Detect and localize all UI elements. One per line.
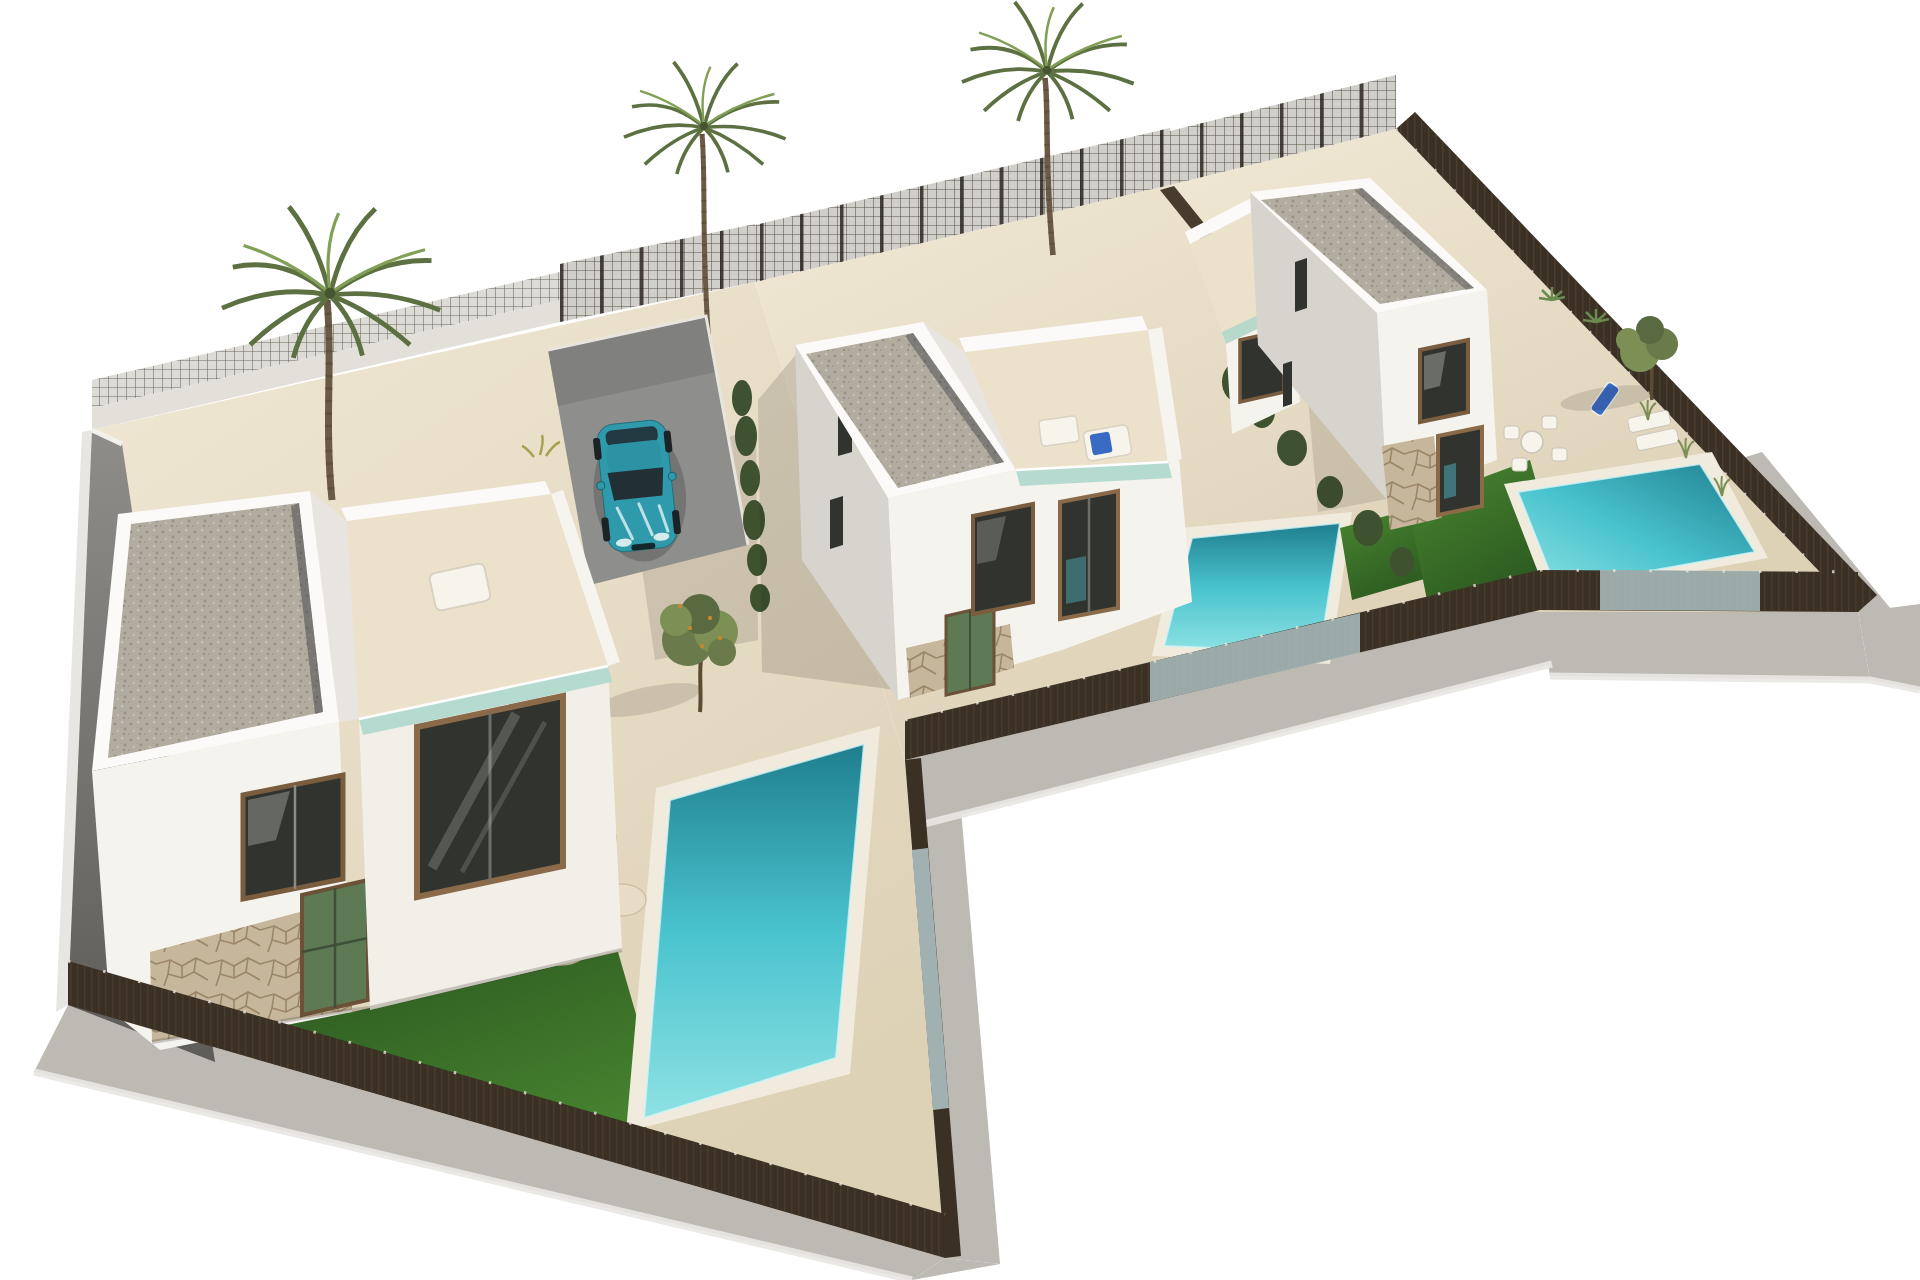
- villa-3-sliding-door: [1438, 427, 1482, 515]
- villa-1-upper-window: [243, 775, 343, 899]
- shrub: [1277, 430, 1307, 466]
- door-pool-reflection: [1066, 556, 1086, 604]
- render-canvas: [0, 0, 1920, 1280]
- car-mirror: [668, 472, 677, 481]
- terrace-lounger: [1038, 415, 1079, 446]
- slot-window: [1283, 361, 1292, 407]
- tree-crown: [708, 638, 736, 666]
- outdoor-chair: [1542, 416, 1557, 429]
- villa-1-sliding-door: [417, 696, 563, 897]
- villa-2-green-door: [946, 605, 994, 695]
- villa-2-sliding-door: [1060, 491, 1118, 619]
- fence-front-right: [1540, 570, 1858, 612]
- villa-2-window: [973, 504, 1033, 614]
- villa-1-main-roof: [92, 491, 339, 771]
- slot-window: [1295, 258, 1307, 312]
- car-mirror: [596, 481, 605, 490]
- villa-1-green-door: [302, 880, 368, 1015]
- lounger-towel: [1089, 431, 1112, 455]
- hedge-bush: [735, 416, 757, 456]
- villa-3-stone-cladding: [1382, 436, 1442, 530]
- outdoor-chair: [1552, 448, 1567, 461]
- villa-3-upper-window: [1420, 340, 1468, 422]
- hedge-bush: [740, 460, 760, 496]
- tree-crown: [1636, 316, 1664, 344]
- pool-glass-fence: [1600, 570, 1760, 611]
- pool-left: [626, 726, 880, 1132]
- tree-crown: [1616, 328, 1640, 352]
- door-pool-reflection: [1444, 463, 1456, 499]
- slot-window: [830, 496, 843, 549]
- outdoor-table: [1521, 431, 1543, 453]
- outdoor-chair: [1504, 426, 1519, 439]
- hedge-bush: [732, 380, 752, 416]
- car-roof: [606, 439, 663, 472]
- outdoor-chair: [1512, 458, 1527, 471]
- apron-right-front: [1540, 610, 1870, 680]
- shrub: [1353, 510, 1383, 546]
- tree-crown: [660, 604, 692, 636]
- shrub: [1390, 547, 1414, 577]
